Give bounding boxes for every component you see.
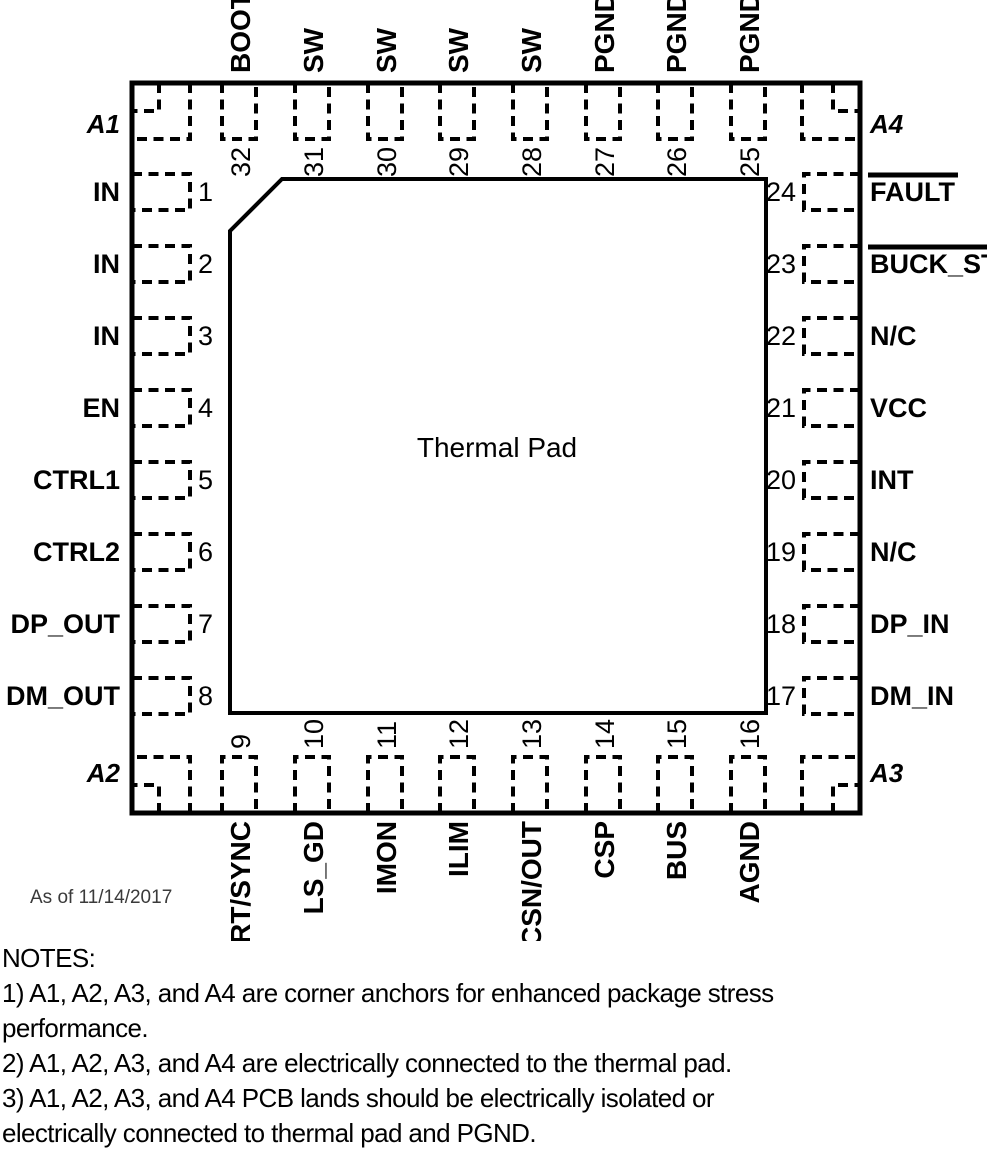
pin-number: 22 [766,321,796,351]
pin-number: 21 [766,393,796,423]
pin-30: 30SW [368,27,402,177]
pinout-diagram: Thermal Pad A1 A4 A2 A3 As of 11/14/2017… [0,0,987,941]
pin-number: 18 [766,609,796,639]
date-note: As of 11/14/2017 [30,887,172,908]
pin-28: 28SW [513,27,547,177]
pin-pad [132,462,190,498]
pin-number: 23 [766,249,796,279]
pin-2: 2IN [93,246,213,282]
pin-label: SW [443,27,474,73]
pin-pad [132,678,190,714]
pin-number: 25 [735,147,765,177]
pin-23: 23BUCK_ST [766,246,987,282]
pin-label: LS_GD [298,821,329,914]
corner-anchor-pad-a1 [132,83,190,139]
notes-line: electrically connected to thermal pad an… [2,1116,982,1151]
pin-pad [804,318,860,354]
corner-anchor-pad-a3 [802,757,862,813]
pin-pad [804,534,860,570]
pin-label: BOOT [225,0,256,73]
pin-29: 29SW [440,27,474,177]
pin-12: 12ILIM [440,719,474,877]
pin-32: 32BOOT [222,0,256,177]
pin-8: 8DM_OUT [6,678,213,714]
pin-13: 13CSN/OUT [513,719,547,941]
pin-number: 4 [198,393,213,423]
pin-pad [132,246,190,282]
pin-pad [804,678,860,714]
pin-number: 1 [198,177,213,207]
pin-label: SW [298,27,329,73]
pin-number: 7 [198,609,213,639]
pin-25: 25PGND [731,0,765,177]
pin-pad [513,757,547,813]
pin-pad [513,83,547,139]
pin-number: 15 [662,719,692,749]
pin-9: 9RT/SYNC [222,734,256,941]
pin-pad [586,757,620,813]
pin-pad [804,606,860,642]
pin-6: 6CTRL2 [33,534,213,570]
pin-label: DP_OUT [10,609,120,639]
pin-label: FAULT [870,177,955,207]
corner-label-a1: A1 [86,109,120,139]
pin-1: 1IN [93,174,213,210]
pin-pad [132,318,190,354]
pin-number: 26 [662,147,692,177]
pin-pad [658,757,692,813]
pin-label: IMON [371,821,402,894]
pin-number: 13 [517,719,547,749]
pin-label: BUCK_ST [870,249,987,279]
pin-pad [222,757,256,813]
pin-pad [222,83,256,139]
pin-label: IN [93,321,120,351]
pin-number: 12 [444,719,474,749]
pin-number: 8 [198,681,213,711]
pin-label: DP_IN [870,609,950,639]
pin-label: EN [82,393,120,423]
pin-pad [731,757,765,813]
pin-label: SW [516,27,547,73]
pin-label: CTRL2 [33,537,120,567]
pin-label: IN [93,177,120,207]
pin-pad [440,757,474,813]
pin-11: 11IMON [368,721,402,894]
pin-label: N/C [870,321,917,351]
pin-27: 27PGND [586,0,620,177]
pin-number: 30 [372,147,402,177]
pin-label: PGND [734,0,765,73]
pin-label: INT [870,465,914,495]
corner-label-a2: A2 [86,758,121,788]
pin-14: 14CSP [586,719,620,879]
pin-pad [132,174,190,210]
pin-19: 19N/C [766,534,917,570]
pin-number: 3 [198,321,213,351]
thermal-pad-label: Thermal Pad [417,432,577,463]
notes-line: 2) A1, A2, A3, and A4 are electrically c… [2,1046,982,1081]
pin-number: 17 [766,681,796,711]
pin-10: 10LS_GD [295,719,329,914]
notes-line: performance. [2,1011,982,1046]
pin-pad [804,462,860,498]
notes-line: 3) A1, A2, A3, and A4 PCB lands should b… [2,1081,982,1116]
pin-pad [804,390,860,426]
pin-pad [731,83,765,139]
pin-pad [132,606,190,642]
pin-pad [295,83,329,139]
pin-number: 27 [590,147,620,177]
pin-number: 16 [735,719,765,749]
pin-pad [132,534,190,570]
pin-number: 28 [517,147,547,177]
pin-label: CSN/OUT [516,821,547,941]
notes-line: NOTES: [2,941,982,976]
pin-number: 31 [299,147,329,177]
pin-number: 24 [766,177,796,207]
pin-20: 20INT [766,462,914,498]
pin-pad [658,83,692,139]
pin-pad [132,390,190,426]
corner-label-a4: A4 [869,109,904,139]
pin-pad [368,757,402,813]
pin-number: 29 [444,147,474,177]
pin-label: DM_OUT [6,681,121,711]
pin-label: AGND [734,821,765,903]
pin-22: 22N/C [766,318,917,354]
pin-pad [586,83,620,139]
pin-pad [440,83,474,139]
notes-line: 1) A1, A2, A3, and A4 are corner anchors… [2,976,982,1011]
pin-label: PGND [661,0,692,73]
pin-7: 7DP_OUT [10,606,213,642]
pin-label: N/C [870,537,917,567]
pin-label: CSP [589,821,620,879]
pin-label: DM_IN [870,681,954,711]
pin-number: 9 [226,734,256,749]
pin-number: 20 [766,465,796,495]
notes: NOTES: 1) A1, A2, A3, and A4 are corner … [2,941,982,1151]
pin-number: 11 [372,721,402,749]
pin-pad [804,246,860,282]
pin-pad [368,83,402,139]
pin-number: 14 [590,719,620,749]
pin-number: 10 [299,719,329,749]
pin-31: 31SW [295,27,329,177]
pin-pad [804,174,860,210]
pin-number: 2 [198,249,213,279]
pin-number: 32 [226,147,256,177]
pin-label: SW [371,27,402,73]
pin-21: 21VCC [766,390,927,426]
pin-label: VCC [870,393,927,423]
pin-label: CTRL1 [33,465,120,495]
corner-label-a3: A3 [869,758,904,788]
pin-label: PGND [589,0,620,73]
pin-4: 4EN [82,390,213,426]
pinout-page: Thermal Pad A1 A4 A2 A3 As of 11/14/2017… [0,0,987,1162]
pin-label: BUS [661,821,692,880]
pin-label: IN [93,249,120,279]
pin-label: RT/SYNC [225,821,256,941]
pin-label: ILIM [443,821,474,877]
pin-5: 5CTRL1 [33,462,213,498]
pin-3: 3IN [93,318,213,354]
pin-pad [295,757,329,813]
corner-anchor-pad-a2 [132,757,190,813]
pin-number: 19 [766,537,796,567]
pin-15: 15BUS [658,719,692,880]
pin-number: 5 [198,465,213,495]
pin-number: 6 [198,537,213,567]
pin-26: 26PGND [658,0,692,177]
corner-anchor-pad-a4 [802,83,860,139]
